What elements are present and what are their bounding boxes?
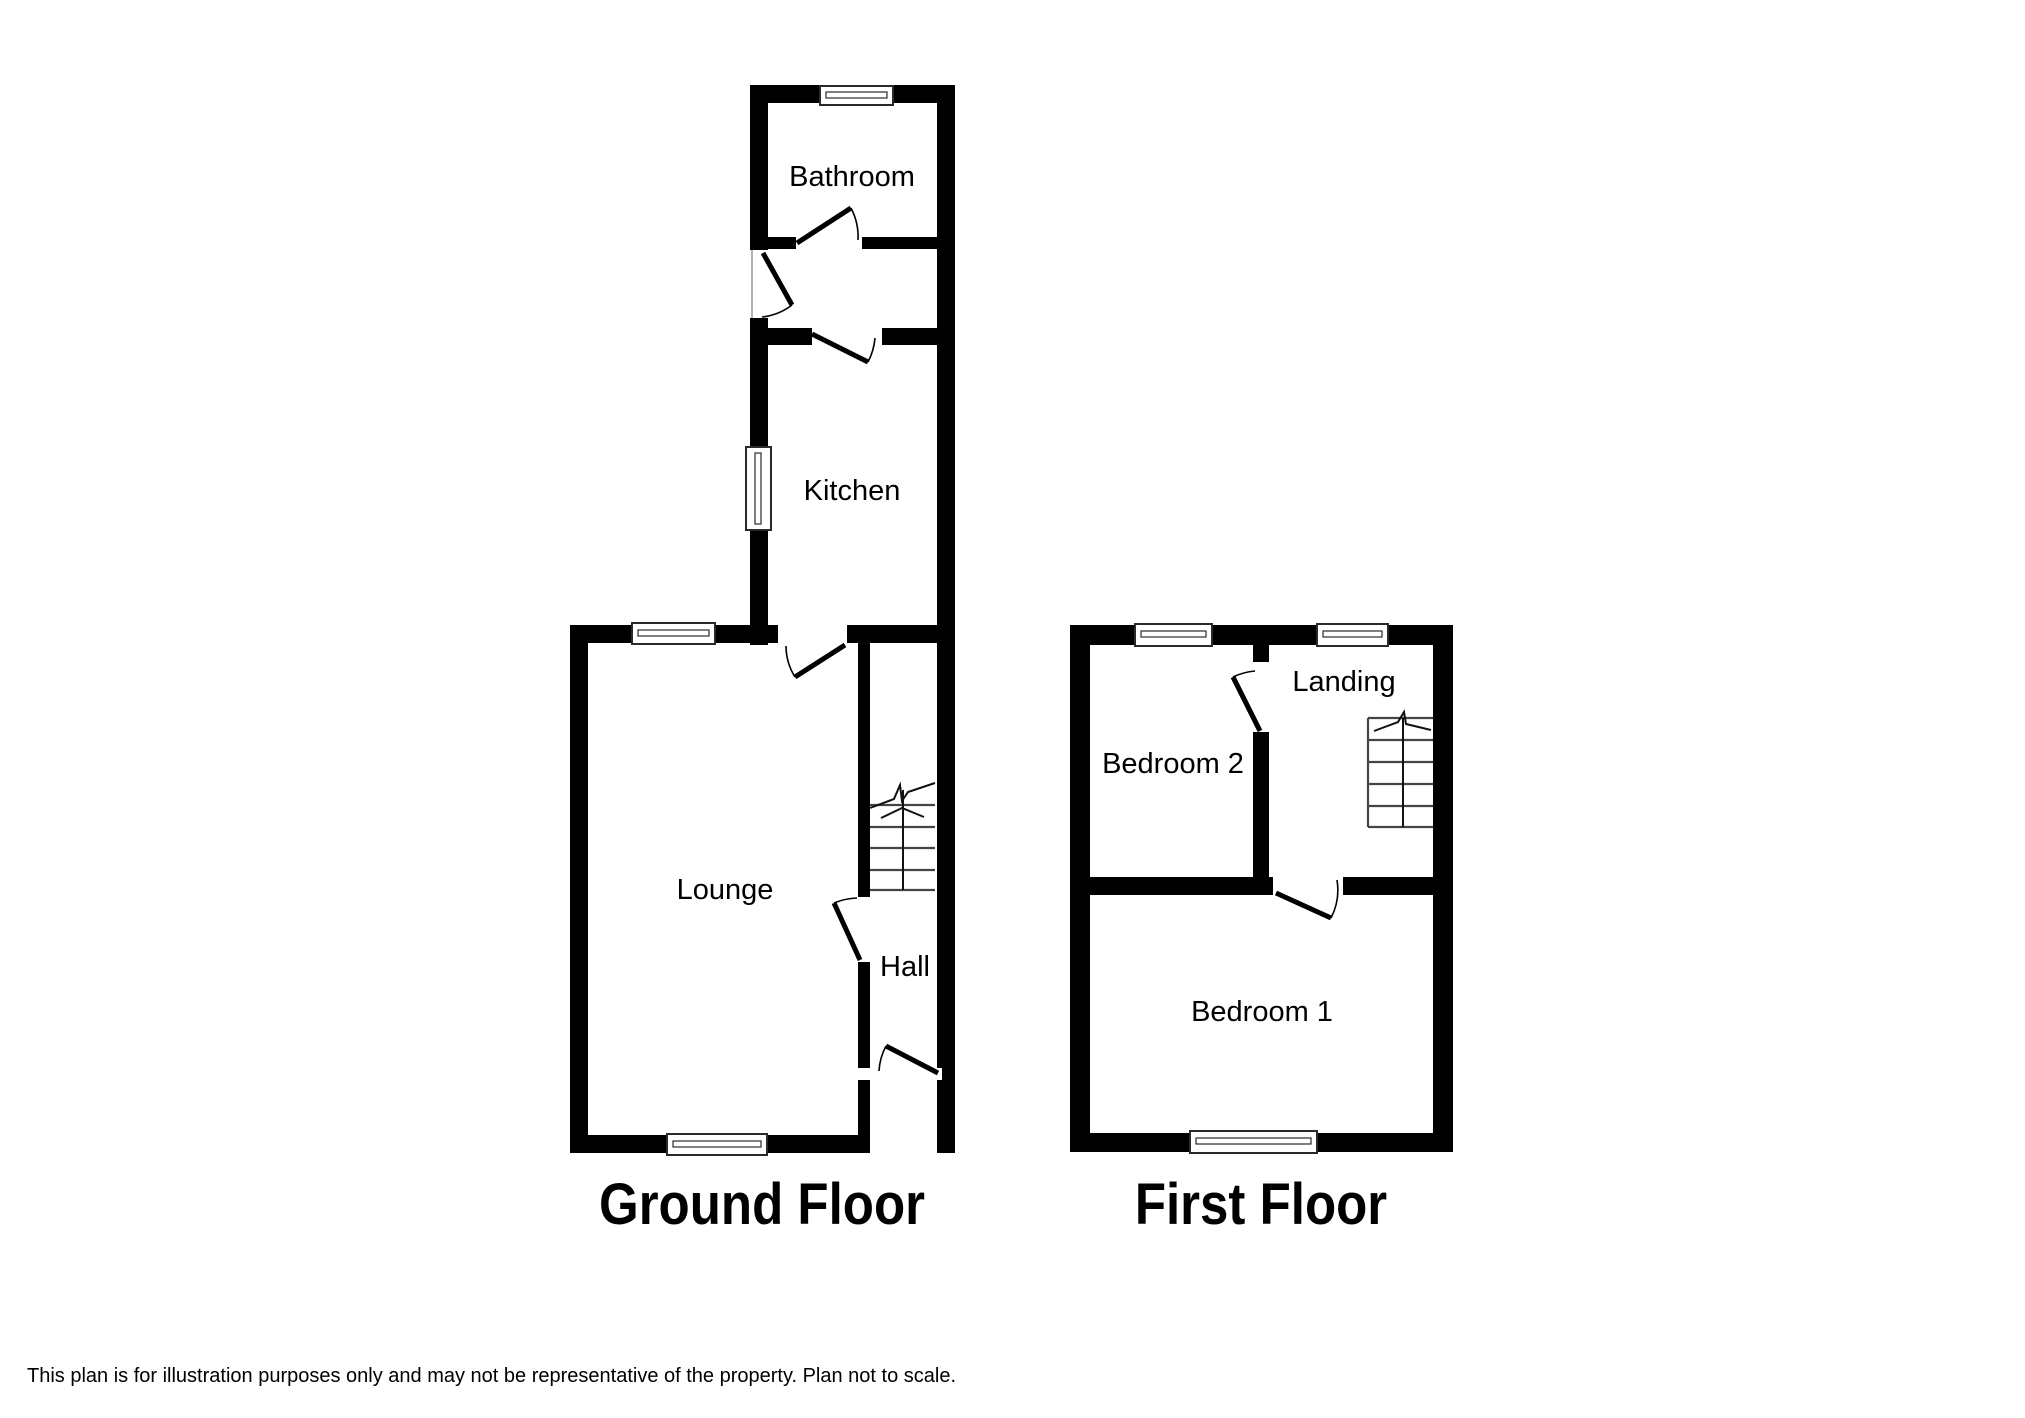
disclaimer: This plan is for illustration purposes o… xyxy=(27,1365,956,1387)
bathroom-door xyxy=(797,208,858,243)
lounge-hall-door xyxy=(834,898,860,960)
ground-floor-staircase xyxy=(870,783,935,890)
first-floor-title: First Floor xyxy=(1135,1172,1387,1237)
kitchen-door xyxy=(812,334,875,362)
room-label-hall: Hall xyxy=(880,951,930,983)
ground-floor-plan: Bathroom Kitchen Lounge Hall Ground Floo… xyxy=(570,85,955,1237)
first-floor-staircase xyxy=(1368,712,1433,827)
first-floor-plan: Bedroom 2 Landing Bedroom 1 First Floor xyxy=(1070,624,1453,1237)
bedroom2-window xyxy=(1135,624,1212,646)
bedroom1-window xyxy=(1190,1131,1317,1153)
bathroom-window xyxy=(820,86,893,105)
room-label-bedroom2: Bedroom 2 xyxy=(1102,748,1244,780)
kitchen-lounge-door xyxy=(786,645,845,677)
room-label-kitchen: Kitchen xyxy=(804,475,901,507)
lounge-top-window xyxy=(632,623,715,644)
room-label-bathroom: Bathroom xyxy=(789,161,915,193)
ground-floor-title: Ground Floor xyxy=(599,1172,925,1237)
floorplan-canvas: Bathroom Kitchen Lounge Hall Ground Floo… xyxy=(0,0,2025,1418)
kitchen-window xyxy=(746,447,771,530)
rear-entrance-door xyxy=(752,250,792,318)
room-label-lounge: Lounge xyxy=(677,874,774,906)
bedroom2-door xyxy=(1233,671,1260,731)
bedroom1-door xyxy=(1276,880,1338,918)
room-label-landing: Landing xyxy=(1292,666,1395,698)
first-floor-walls xyxy=(1070,625,1453,1152)
ground-floor-walls xyxy=(570,85,955,1153)
room-label-bedroom1: Bedroom 1 xyxy=(1191,996,1333,1028)
landing-window xyxy=(1317,624,1388,646)
floorplan-page: Bathroom Kitchen Lounge Hall Ground Floo… xyxy=(0,0,2025,1418)
lounge-bottom-window xyxy=(667,1134,767,1155)
front-door xyxy=(879,1046,938,1073)
